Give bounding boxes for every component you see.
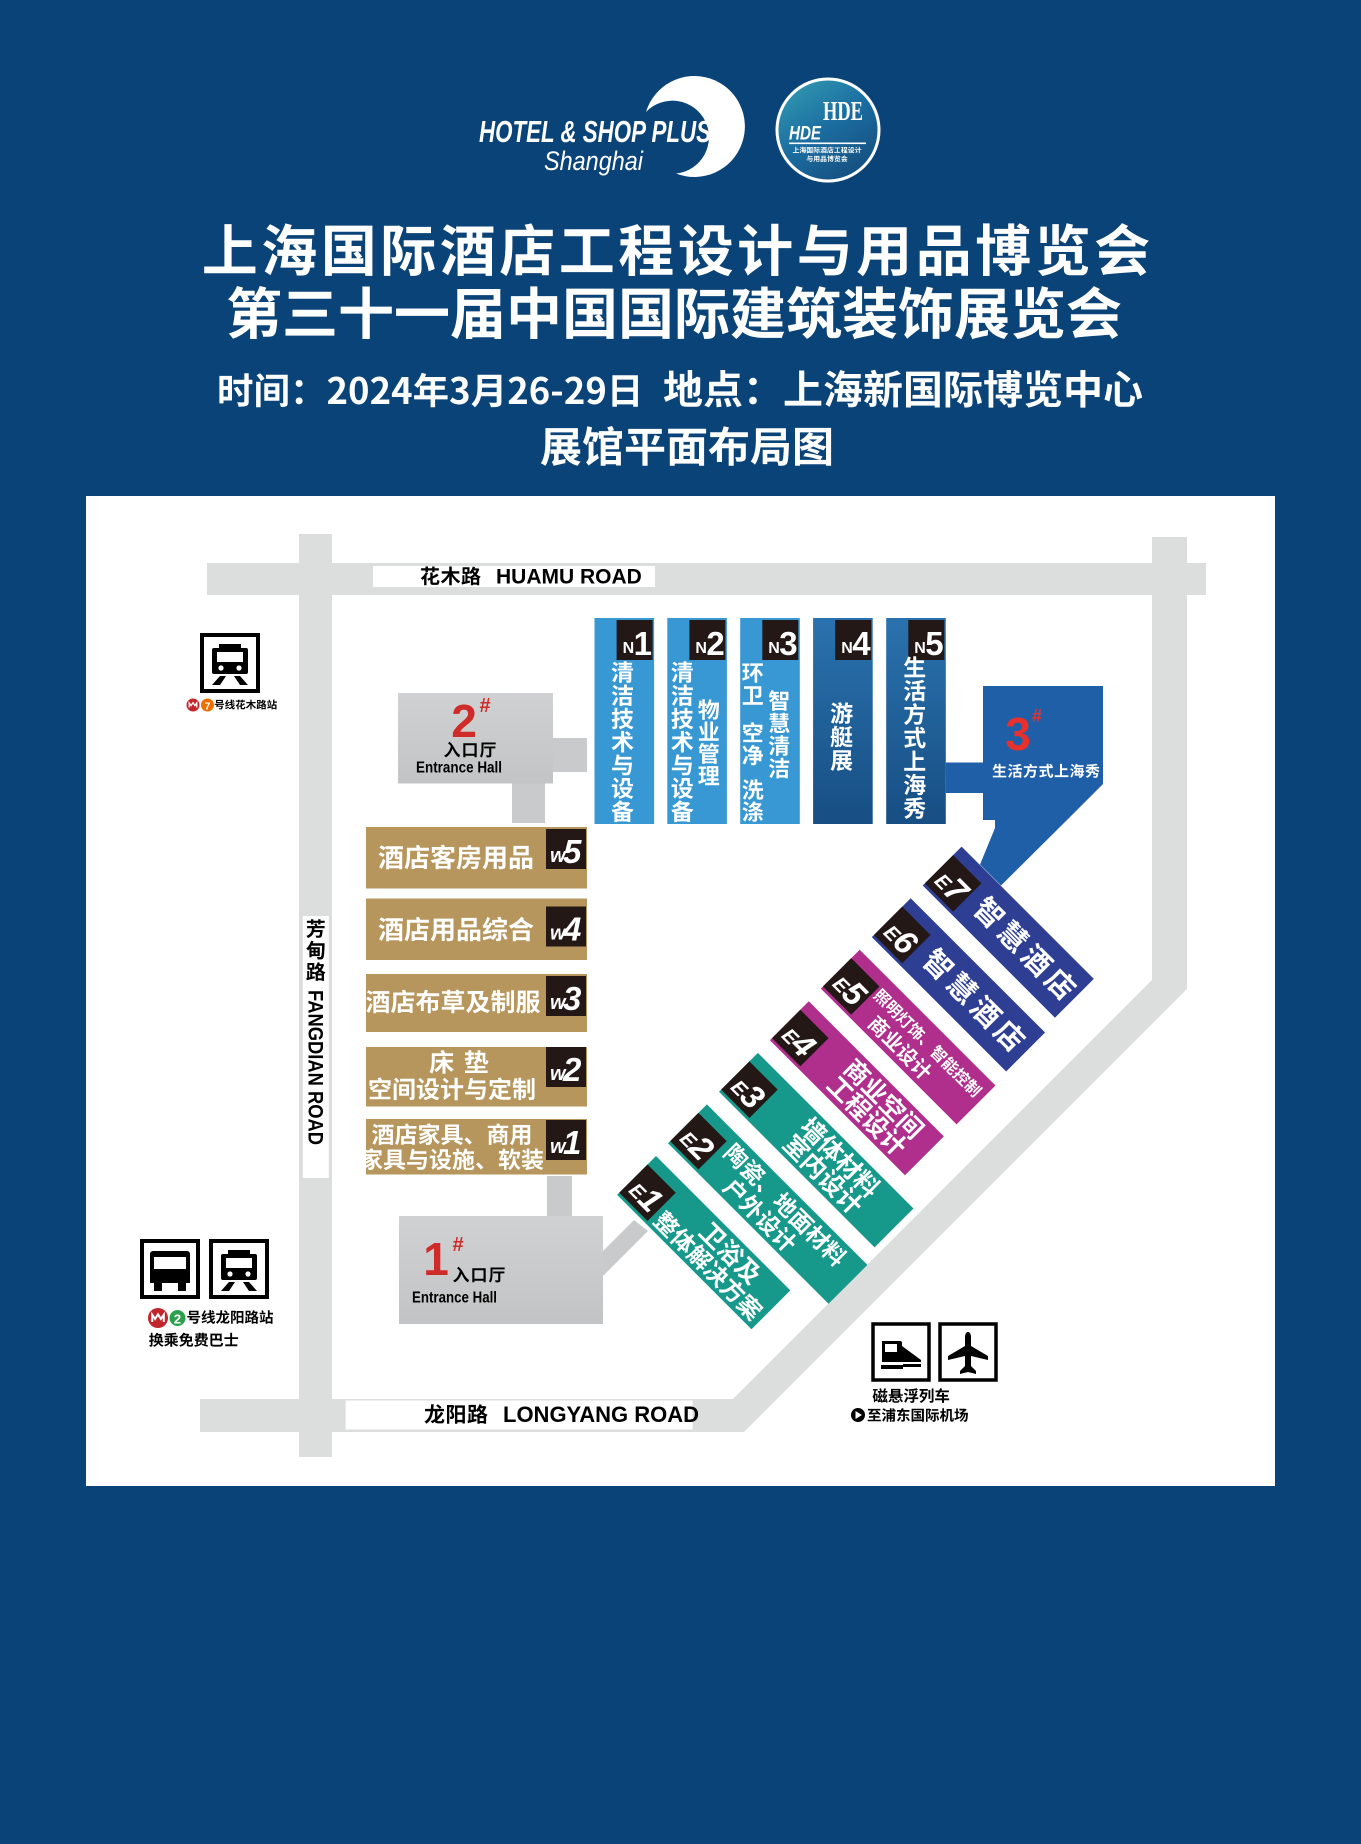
svg-text:5: 5 xyxy=(925,625,943,662)
svg-text:1: 1 xyxy=(634,625,652,662)
svg-text:Shanghai: Shanghai xyxy=(544,146,644,176)
svg-text:HDE: HDE xyxy=(789,124,822,145)
svg-text:N: N xyxy=(914,640,926,657)
svg-text:2: 2 xyxy=(451,695,477,747)
svg-text:3: 3 xyxy=(1005,708,1031,760)
svg-text:LONGYANG ROAD: LONGYANG ROAD xyxy=(503,1402,699,1427)
svg-text:N: N xyxy=(841,640,853,657)
svg-text:N: N xyxy=(623,640,635,657)
svg-text:N: N xyxy=(695,640,707,657)
svg-text:#: # xyxy=(479,695,490,717)
svg-text:1: 1 xyxy=(423,1233,449,1285)
svg-text:4: 4 xyxy=(852,625,871,662)
svg-text:N: N xyxy=(768,640,780,657)
svg-text:5: 5 xyxy=(563,833,582,870)
svg-text:2: 2 xyxy=(706,625,724,662)
svg-text:2: 2 xyxy=(562,1051,582,1088)
svg-text:1: 1 xyxy=(563,1124,581,1161)
svg-text:4: 4 xyxy=(562,911,581,948)
svg-text:Entrance Hall: Entrance Hall xyxy=(416,760,502,777)
svg-text:HUAMU ROAD: HUAMU ROAD xyxy=(496,566,642,589)
svg-text:2: 2 xyxy=(174,1312,181,1327)
svg-text:#: # xyxy=(1032,706,1042,726)
svg-text:Entrance Hall: Entrance Hall xyxy=(412,1290,497,1307)
svg-text:#: # xyxy=(452,1234,463,1256)
svg-text:7: 7 xyxy=(205,701,211,713)
svg-text:HDE: HDE xyxy=(823,96,863,126)
svg-text:FANGDIAN ROAD: FANGDIAN ROAD xyxy=(304,990,327,1145)
svg-text:3: 3 xyxy=(779,625,797,662)
svg-text:3: 3 xyxy=(563,980,581,1017)
svg-text:HOTEL & SHOP PLUS: HOTEL & SHOP PLUS xyxy=(479,114,711,149)
